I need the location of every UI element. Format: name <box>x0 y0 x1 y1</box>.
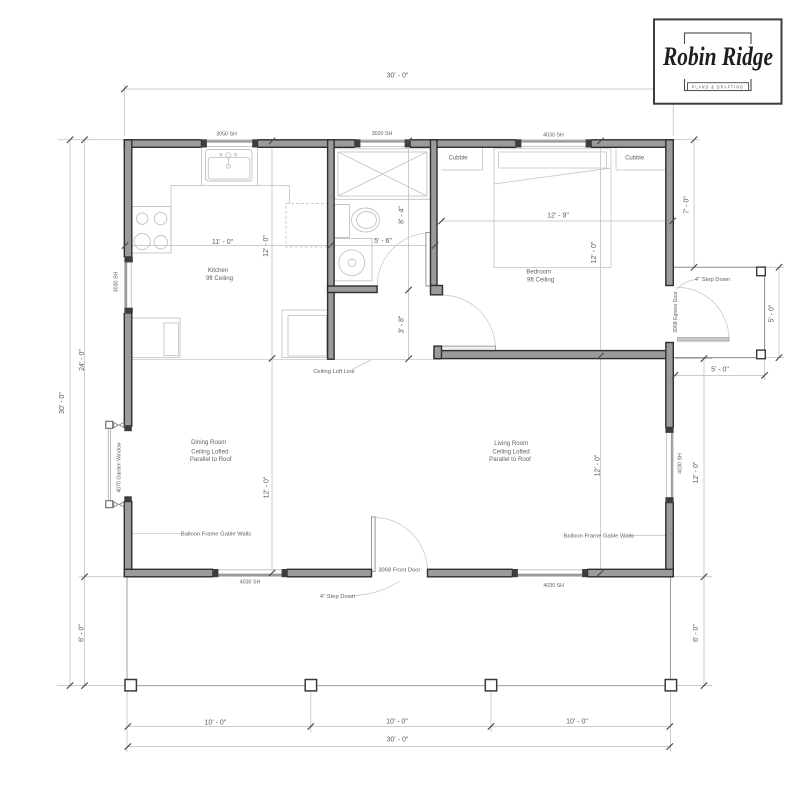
svg-text:Balloon Frame Gable Walls: Balloon Frame Gable Walls <box>564 534 634 540</box>
svg-text:5' - 6": 5' - 6" <box>374 238 392 245</box>
svg-text:Robin Ridge: Robin Ridge <box>662 42 773 71</box>
svg-text:30' - 0": 30' - 0" <box>59 392 66 414</box>
svg-text:9ft Ceiling: 9ft Ceiling <box>206 275 233 282</box>
svg-text:10' - 0": 10' - 0" <box>205 719 227 726</box>
svg-text:3' - 8": 3' - 8" <box>399 315 406 333</box>
svg-text:12' - 9": 12' - 9" <box>547 212 569 219</box>
svg-text:30' - 0": 30' - 0" <box>387 73 409 80</box>
svg-text:Kitchen: Kitchen <box>208 267 228 274</box>
svg-text:9ft Ceiling: 9ft Ceiling <box>527 277 554 284</box>
svg-text:7' - 0": 7' - 0" <box>684 196 691 214</box>
svg-text:12' - 0": 12' - 0" <box>693 461 700 483</box>
svg-text:Ceiling Lofted: Ceiling Lofted <box>492 449 529 456</box>
svg-text:24' - 0": 24' - 0" <box>79 349 86 371</box>
svg-text:12' - 0": 12' - 0" <box>591 241 598 263</box>
svg-text:Parallel to Roof: Parallel to Roof <box>190 456 232 463</box>
svg-text:5' - 0": 5' - 0" <box>711 367 729 374</box>
svg-text:10' - 0": 10' - 0" <box>386 719 408 726</box>
svg-text:3068 Egress Door: 3068 Egress Door <box>673 291 679 333</box>
svg-text:5' - 0": 5' - 0" <box>769 304 776 322</box>
svg-text:Ceiling Loft Line: Ceiling Loft Line <box>313 369 355 375</box>
svg-text:11' - 0": 11' - 0" <box>212 239 234 246</box>
svg-text:3020 SH: 3020 SH <box>372 131 393 137</box>
svg-text:Dining Room: Dining Room <box>191 439 226 446</box>
svg-text:3030 SH: 3030 SH <box>114 272 120 293</box>
svg-text:4" Step Down: 4" Step Down <box>320 594 355 600</box>
svg-text:8' - 4": 8' - 4" <box>399 206 406 224</box>
svg-text:Balloon Frame Gable Walls: Balloon Frame Gable Walls <box>181 532 251 538</box>
svg-text:4030 SH: 4030 SH <box>678 453 684 474</box>
svg-text:Cubbie: Cubbie <box>625 156 645 162</box>
svg-text:4070 Garden Window: 4070 Garden Window <box>117 442 123 492</box>
svg-text:Parallel to Roof: Parallel to Roof <box>489 456 531 463</box>
svg-text:4" Step Down: 4" Step Down <box>695 277 730 283</box>
svg-text:3068 Front Door: 3068 Front Door <box>378 567 420 573</box>
svg-text:Ceiling Lofted: Ceiling Lofted <box>191 449 228 456</box>
svg-text:12' - 0": 12' - 0" <box>595 454 602 476</box>
svg-text:Cubbie: Cubbie <box>448 156 468 162</box>
svg-text:6' - 0": 6' - 0" <box>79 624 86 642</box>
svg-text:4030 SH: 4030 SH <box>543 133 564 139</box>
svg-text:4030 SH: 4030 SH <box>240 579 261 585</box>
svg-text:6' - 0": 6' - 0" <box>693 624 700 642</box>
svg-text:4030 SH: 4030 SH <box>543 583 564 589</box>
svg-text:Bedroom: Bedroom <box>526 269 551 276</box>
svg-text:12' - 0": 12' - 0" <box>263 235 270 257</box>
svg-text:Living Room: Living Room <box>494 440 528 447</box>
svg-text:PLANS & DRAFTING: PLANS & DRAFTING <box>692 84 744 89</box>
svg-text:30' - 0": 30' - 0" <box>387 737 409 744</box>
svg-text:10' - 0": 10' - 0" <box>566 719 588 726</box>
svg-text:12' - 0": 12' - 0" <box>264 476 271 498</box>
svg-text:3050 SH: 3050 SH <box>216 131 237 137</box>
